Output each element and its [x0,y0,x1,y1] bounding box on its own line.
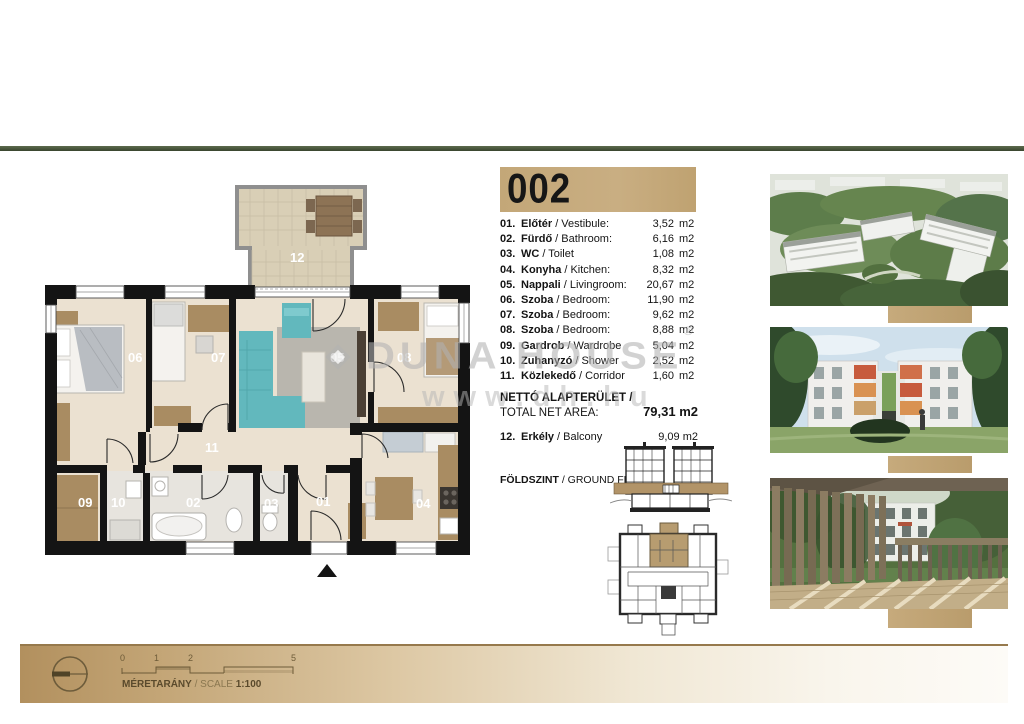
total-value: 79,31 m2 [643,405,698,419]
total-area: NETTÓ ALAPTERÜLET / TOTAL NET AREA: 79,3… [500,391,698,420]
scale-tick-1: 1 [154,653,159,663]
room-label-01: 01 [316,494,330,509]
room-label-08: 08 [397,350,411,365]
room-label-03: 03 [264,496,278,511]
legend-row-01: 01.Előtér/ Vestibule:3,52m2 [500,217,698,232]
building-section-diagram [610,442,732,520]
scale-tick-0: 0 [120,653,125,663]
compass-icon [48,652,92,696]
room-label-10: 10 [111,495,125,510]
entrance-arrow [317,564,337,577]
legend-row-09: 09.Gardrob/ Wardrobe5,04m2 [500,339,698,354]
legend-row-10: 10.Zuhanyzó/ Shower2,52m2 [500,354,698,369]
floorplan-sheet: 06 07 05 08 11 09 10 02 03 01 04 12 DUNA… [0,0,1024,724]
photo-aerial-view [770,174,1008,306]
legend-row-06: 06.Szoba/ Bedroom:11,90m2 [500,293,698,308]
room-label-12: 12 [290,250,304,265]
total-label-hu: NETTÓ ALAPTERÜLET / [500,391,698,405]
room-label-11: 11 [205,440,219,455]
scale-bar-graphic [120,664,298,676]
photo-balcony-view [770,478,1008,609]
scale-tick-5: 5 [291,653,296,663]
unit-number: 002 [507,166,571,213]
legend-row-07: 07.Szoba/ Bedroom:9,62m2 [500,308,698,323]
tan-divider-1 [888,306,972,323]
tan-divider-3 [888,609,972,628]
legend-row-03: 03.WC/ Toilet1,08m2 [500,247,698,262]
legend-row-05: 05.Nappali/ Livingroom:20,67m2 [500,278,698,293]
photo-building-facade [770,327,1008,453]
header-rule [0,146,1024,151]
floor-plan-drawing: 06 07 05 08 11 09 10 02 03 01 04 12 [35,175,477,587]
room-label-09: 09 [78,495,92,510]
legend-row-02: 02.Fürdő/ Bathroom:6,16m2 [500,232,698,247]
room-label-05: 05 [330,350,344,365]
balcony-area [237,187,365,300]
legend-row-04: 04.Konyha/ Kitchen:8,32m2 [500,263,698,278]
room-label-06: 06 [128,350,142,365]
room-label-04: 04 [416,496,431,511]
legend-row-11: 11.Közlekedő/ Corridor1,60m2 [500,369,698,384]
scale-tick-2: 2 [188,653,193,663]
key-plan-diagram [598,520,738,638]
room-label-07: 07 [211,350,225,365]
legend-row-08: 08.Szoba/ Bedroom:8,88m2 [500,323,698,338]
unit-header: 002 [500,167,696,212]
room-label-02: 02 [186,495,200,510]
total-label-en: TOTAL NET AREA: [500,406,599,420]
tan-divider-2 [888,456,972,473]
scale-caption: MÉRETARÁNY / SCALE 1:100 [122,679,261,690]
scale-bar-strip: 0 1 2 5 MÉRETARÁNY / SCALE 1:100 [20,644,1008,703]
